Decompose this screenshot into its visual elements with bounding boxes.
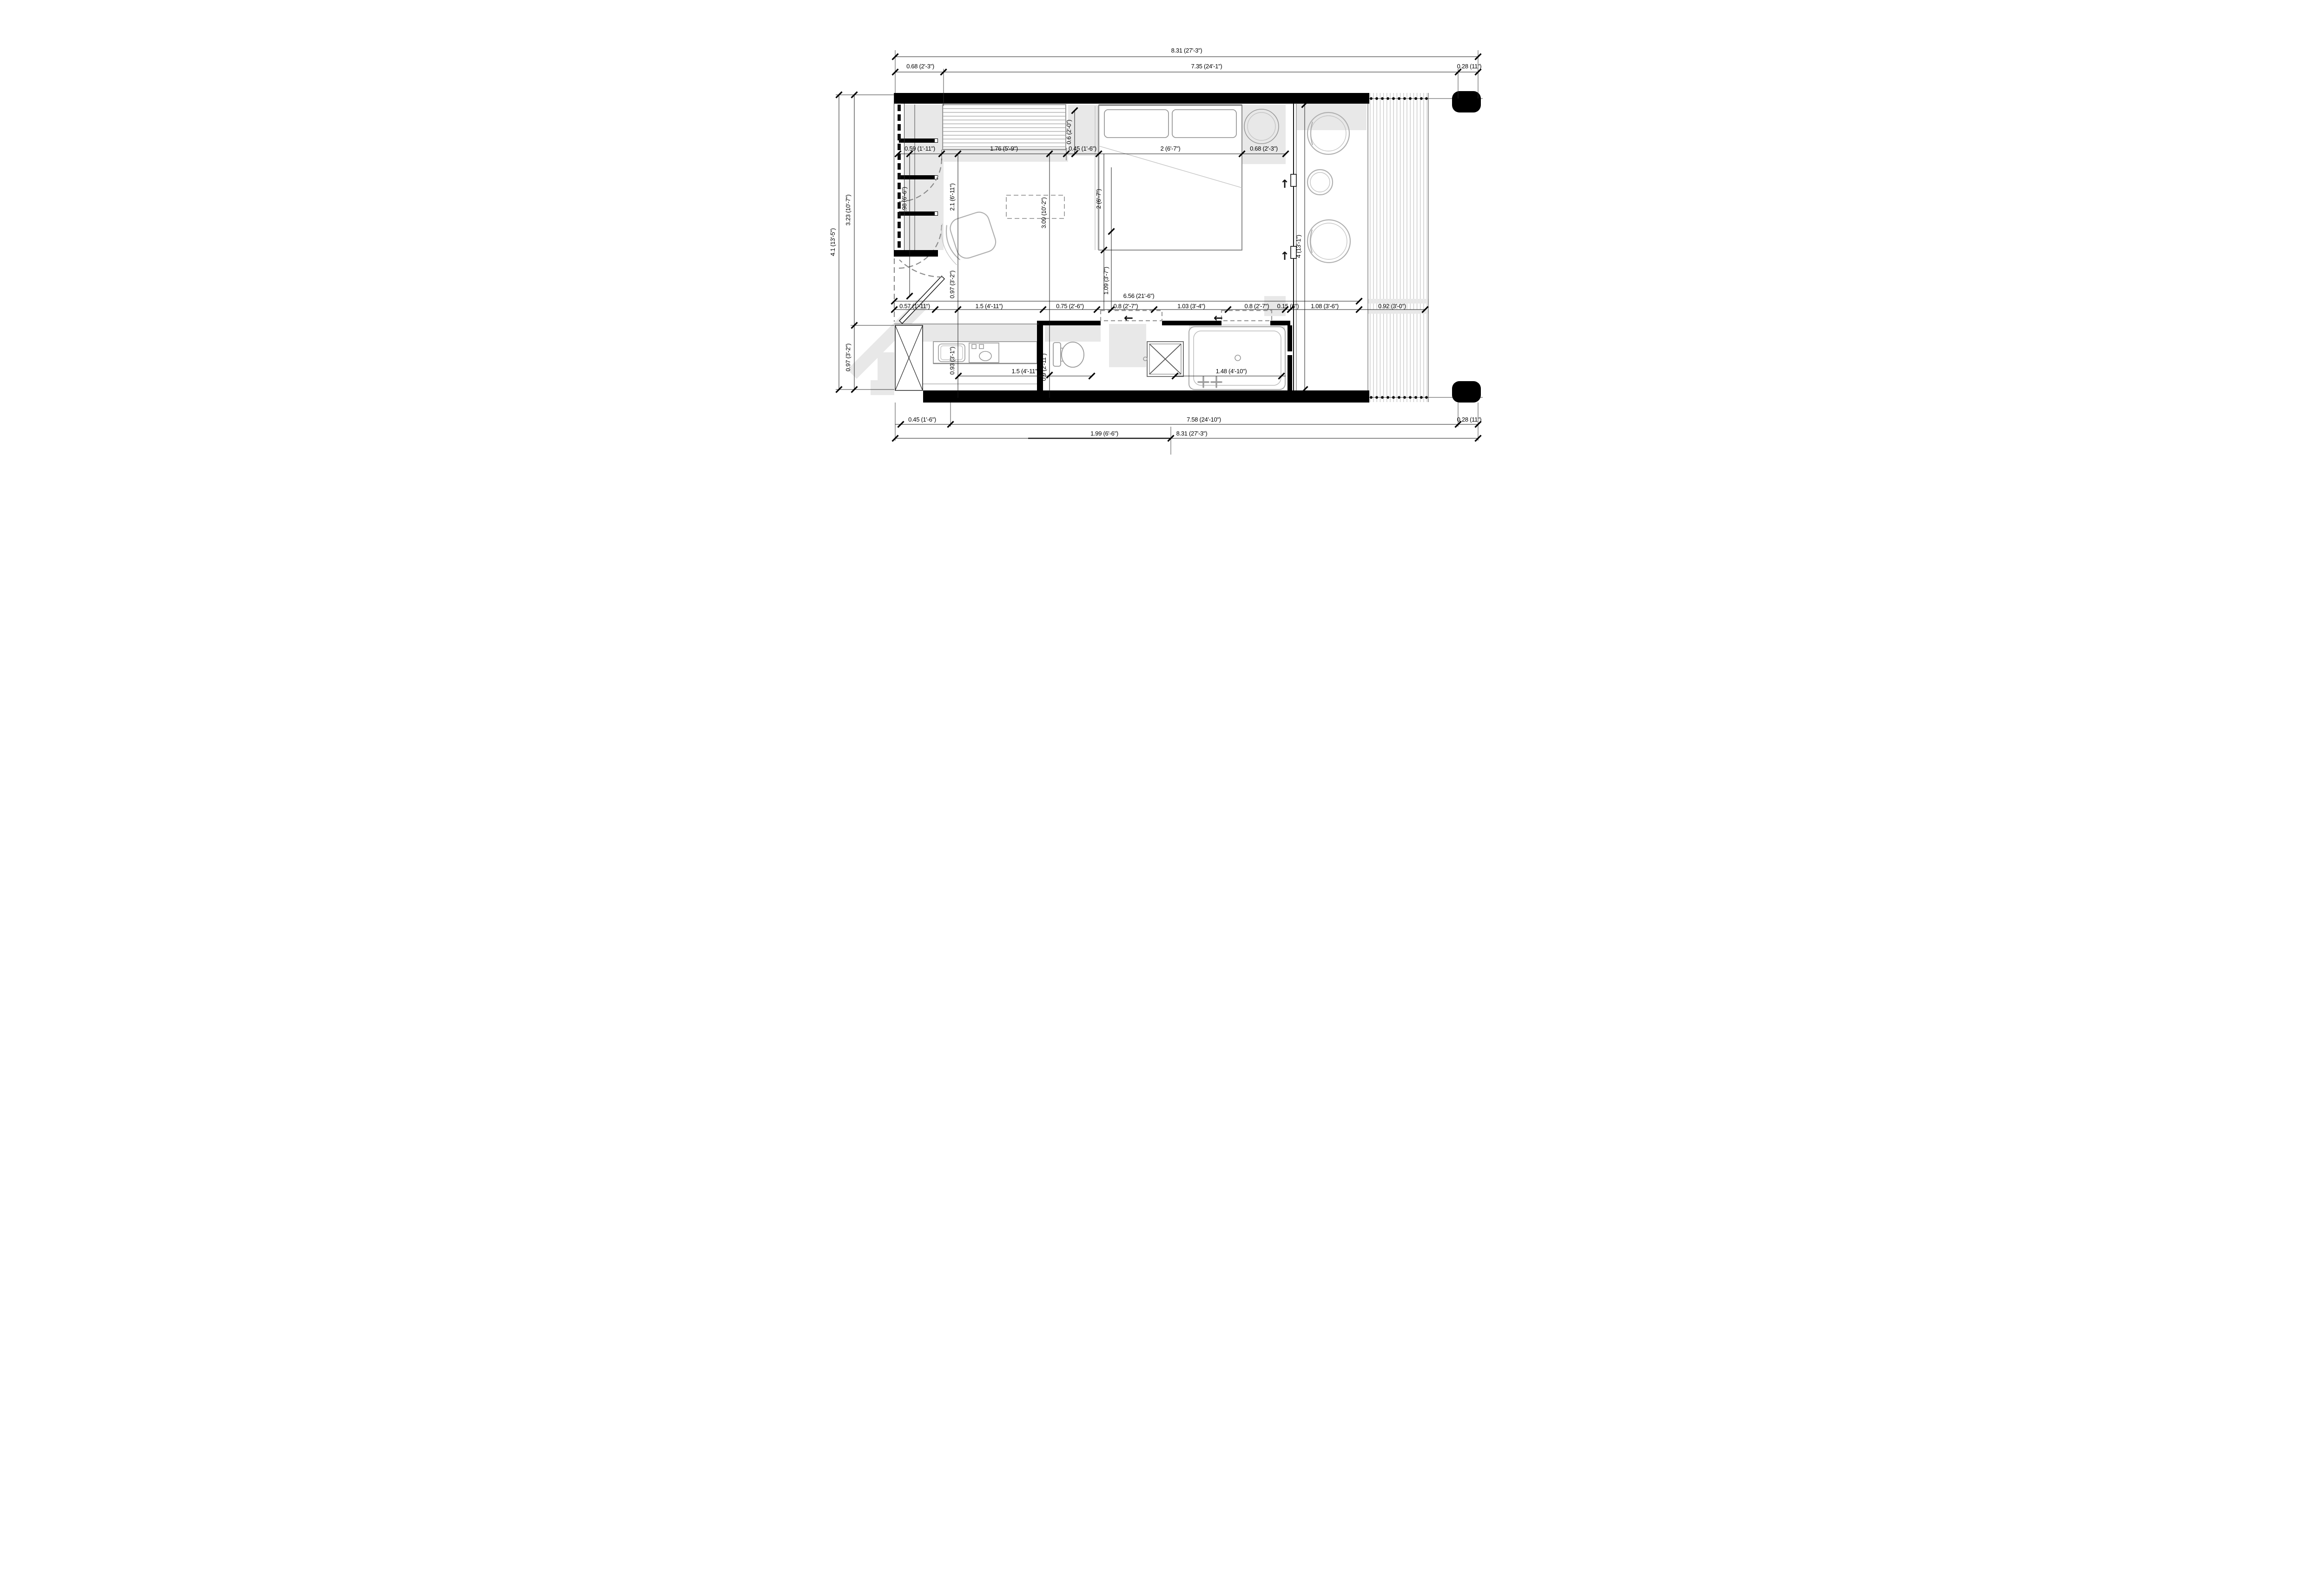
deck-boards	[1368, 93, 1428, 402]
dim-left-lower: 0.97 (3'-2")	[845, 343, 852, 371]
dim-bottom-right: 0.28 (11")	[1457, 416, 1481, 423]
dim-bath-depth: 0.9 (2'-11")	[1040, 354, 1047, 381]
entry-door-leaf	[899, 276, 944, 324]
dim-row2-tubdoor: 0.8 (2'-7")	[1244, 303, 1269, 310]
dim-top-total: 8.31 (27'-3")	[1171, 47, 1202, 54]
dim-row2-door: 0.8 (2'-7")	[1113, 303, 1138, 310]
dim-row1-wardrobe: 1.76 (5'-9")	[990, 145, 1018, 152]
swing-arrow-up-icon: ↑	[1280, 178, 1289, 191]
bed	[1095, 105, 1242, 250]
dim-bottom-entry: 1.99 (6'-6")	[1090, 430, 1118, 437]
dim-living-depth: 3.09 (10'-2")	[1040, 198, 1047, 229]
slide-arrow-left-icon: ←	[1123, 311, 1133, 324]
dim-closet-wall: 2.1 (6'-11")	[949, 184, 956, 211]
dim-row2-kitchen: 1.5 (4'-11")	[975, 303, 1003, 310]
dim-left-total: 4.1 (13'-5")	[829, 228, 836, 256]
dim-bottom-mid: 7.58 (24'-10")	[1187, 416, 1221, 423]
pillow	[1172, 110, 1236, 138]
dim-row2-wc: 0.75 (2'-6")	[1056, 303, 1084, 310]
dim-row1-closet: 0.59 (1'-11")	[905, 145, 935, 152]
entry-shaft	[895, 325, 923, 390]
dim-hall-depth: 1.09 (3'-7")	[1103, 267, 1109, 295]
sliding-door-leaf	[1291, 174, 1296, 186]
dim-closet-depth: 1.98 (6'-6")	[901, 187, 908, 215]
dim-interior-width: 6.56 (21'-6")	[1123, 292, 1154, 299]
dim-entry-depth: 0.97 (3'-2")	[949, 271, 956, 298]
folding-table-hidden	[1006, 195, 1064, 218]
swing-arrow-up-icon: ↑	[1280, 250, 1289, 263]
dim-row2-balcony: 1.08 (3'-6")	[1311, 303, 1339, 310]
dim-left-upper: 3.23 (10'-7")	[845, 195, 852, 226]
dim-top-mid: 7.35 (24'-1")	[1191, 63, 1222, 70]
pillow	[1104, 110, 1169, 138]
deck	[1368, 91, 1483, 403]
balcony-chair-bottom	[1307, 220, 1350, 263]
shower	[1143, 342, 1183, 376]
column-top-right	[1452, 91, 1481, 112]
dim-row1-side: 0.68 (2'-3")	[1250, 145, 1278, 152]
pocket-door-tub	[1221, 310, 1272, 321]
dim-head-gap: 0.6 (2'-0")	[1065, 120, 1072, 145]
floorplan-drawing: ← ← ↑ ↑	[803, 0, 1521, 488]
floorplan-page: ← ← ↑ ↑	[803, 0, 1521, 488]
entry-door	[899, 260, 944, 324]
dim-row1-bed: 2 (6'-7")	[1160, 145, 1180, 152]
wall-top	[894, 93, 1369, 104]
toilet	[1053, 342, 1084, 367]
dim-row2-wall: 0.15 (6")	[1277, 303, 1299, 310]
balcony-table	[1307, 170, 1333, 195]
dim-kitchen-width: 1.5 (4'-11")	[1011, 368, 1039, 375]
lounge-chair	[937, 210, 999, 267]
slide-arrow-left-icon: ←	[1213, 311, 1222, 324]
dim-bottom-total: 8.31 (27'-3")	[1176, 430, 1207, 437]
dim-row2-deck: 0.92 (3'-0")	[1378, 303, 1406, 310]
dim-window-wall: 4 (13'-1")	[1295, 235, 1302, 258]
dim-bottom-left: 0.45 (1'-6")	[908, 416, 936, 423]
dim-top-right: 0.28 (11")	[1457, 63, 1481, 70]
dim-top-left: 0.68 (2'-3")	[906, 63, 934, 70]
dim-row2-shower: 1.03 (3'-4")	[1177, 303, 1205, 310]
column-bottom-right	[1452, 381, 1481, 403]
bathtub	[1189, 327, 1285, 390]
dim-bed-length: 2 (6'-7")	[1095, 189, 1102, 209]
dim-row2-entry: 0.57 (1'-11")	[899, 303, 930, 310]
dim-row1-gap: 0.45 (1'-6")	[1069, 145, 1096, 152]
kitchen	[905, 342, 1037, 384]
dim-tub-width: 1.48 (4'-10")	[1215, 368, 1247, 375]
dim-kitchen-depth: 0.93 (3'-1")	[949, 347, 956, 375]
